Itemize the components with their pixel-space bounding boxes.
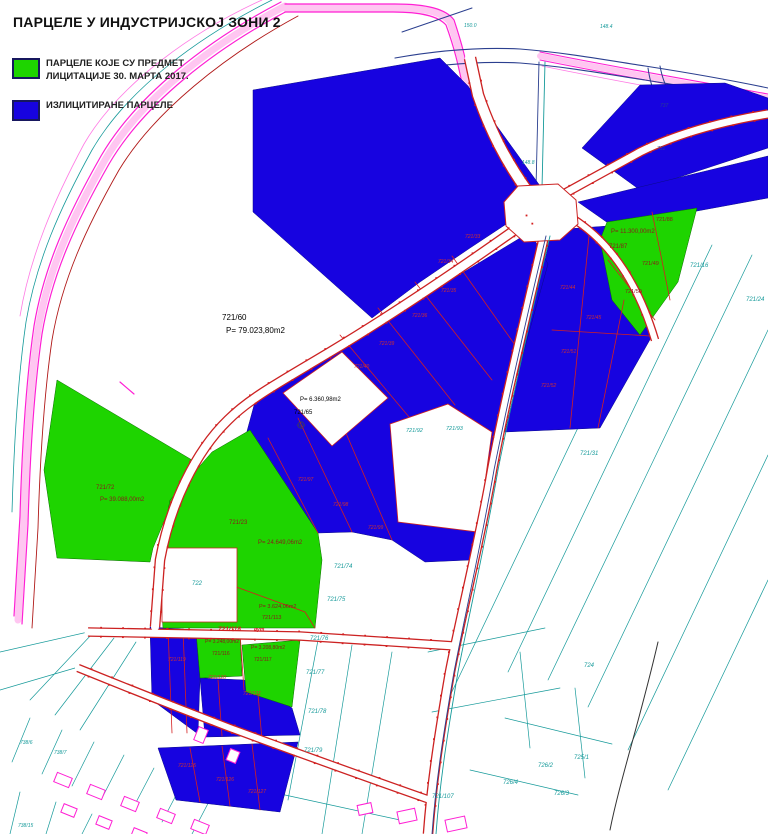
legend-label-auction: ПАРЦЕЛЕ КОЈЕ СУ ПРЕДМЕТ ЛИЦИТАЦИЈЕ 30. М…	[46, 58, 189, 84]
road-tick	[188, 629, 190, 631]
building	[54, 772, 73, 787]
parcel-label: 721/35	[441, 288, 457, 294]
road-tick	[213, 717, 215, 719]
parcel-721-92-93	[390, 404, 492, 532]
road-tick	[541, 266, 543, 268]
road-tick	[364, 644, 366, 646]
parcel-label: 721/77	[306, 670, 325, 676]
utility-line	[536, 62, 539, 188]
parcel-label: P= 79.023,80m2	[226, 326, 285, 335]
parcel-label: 721/50	[625, 289, 642, 295]
road-tick	[292, 379, 294, 381]
parcel-label: 721/24	[746, 297, 765, 303]
parcel-label: 721/39	[379, 341, 395, 347]
road-tick	[450, 696, 452, 698]
road-tick	[163, 522, 165, 524]
road-tick	[157, 544, 159, 546]
road-tick	[210, 724, 212, 726]
parcel-label: 726/2	[538, 763, 554, 769]
field-line	[520, 652, 530, 748]
parcel-label: 725/1	[574, 755, 589, 761]
road-tick	[172, 525, 174, 527]
road-tick	[650, 151, 652, 153]
road-tick	[480, 501, 482, 503]
road-tick	[275, 740, 277, 742]
parcel-label: 721/93	[446, 426, 464, 432]
road-tick	[88, 676, 90, 678]
road-tick	[437, 783, 439, 785]
parcel-label: 721/121	[243, 691, 261, 697]
road-tick	[629, 271, 631, 273]
road-tick	[337, 762, 339, 764]
road-tick	[467, 610, 469, 612]
road-tick	[160, 611, 162, 613]
building	[397, 808, 417, 823]
road-tick	[376, 785, 378, 787]
road-tick	[454, 265, 456, 267]
road-tick	[481, 546, 483, 548]
parcel-label: 721/107	[432, 794, 454, 800]
road-tick	[179, 481, 181, 483]
roundabout	[504, 184, 578, 242]
road-tick	[367, 334, 369, 336]
road-tick	[144, 637, 146, 639]
road-tick	[484, 479, 486, 481]
road-tick	[386, 636, 388, 638]
road-tick	[223, 431, 225, 433]
road-tick	[399, 301, 401, 303]
road-tick	[311, 368, 313, 370]
road-tick	[730, 116, 732, 118]
parcel-label: 721/98	[333, 502, 349, 508]
road-tick	[646, 143, 648, 145]
road-tick	[536, 243, 538, 245]
road-tick	[172, 701, 174, 703]
road-tick	[215, 424, 217, 426]
road-tick	[508, 227, 510, 229]
road-tick	[446, 718, 448, 720]
road-tick	[254, 639, 256, 641]
road-tick	[474, 104, 476, 106]
road-tick	[531, 264, 533, 266]
parcel-label: P= 6.360,98m2	[300, 397, 342, 403]
road-tick	[521, 307, 523, 309]
road-tick	[420, 792, 422, 794]
road-tick	[152, 693, 154, 695]
road-tick	[472, 252, 474, 254]
road-tick	[435, 805, 437, 807]
parcel-label: 724	[584, 663, 595, 669]
road-tick	[293, 755, 295, 757]
parcel-label: 721/34	[438, 259, 454, 265]
road-tick	[494, 481, 496, 483]
road-tick	[588, 174, 590, 176]
road-tick	[507, 371, 509, 373]
road-tick	[404, 310, 406, 312]
road-tick	[497, 414, 499, 416]
parcel-label: 721/49	[642, 261, 659, 267]
legend: ПАРЦЕЛЕ КОЈЕ СУ ПРЕДМЕТ ЛИЦИТАЦИЈЕ 30. М…	[12, 58, 189, 137]
road-tick	[198, 466, 200, 468]
road-tick	[732, 124, 734, 126]
road-tick	[601, 236, 603, 238]
legend-swatch-blue	[12, 100, 40, 121]
parcel-label: 721/97	[298, 477, 314, 483]
road-tick	[296, 747, 298, 749]
road-tick	[408, 638, 410, 640]
building	[131, 828, 147, 834]
parcel-label: P= 3.248,00m2	[205, 639, 239, 645]
road-tick	[193, 709, 195, 711]
road-tick	[709, 121, 711, 123]
road-tick	[417, 289, 419, 291]
road-tick	[355, 777, 357, 779]
road-tick	[458, 653, 460, 655]
road-tick	[584, 221, 586, 223]
road-tick	[430, 648, 432, 650]
road-tick	[111, 676, 113, 678]
building	[61, 804, 77, 818]
road-tick	[622, 275, 624, 277]
road-tick	[607, 164, 609, 166]
road-tick	[711, 129, 713, 131]
road-tick	[397, 792, 399, 794]
road-tick	[579, 228, 581, 230]
road-tick	[531, 223, 533, 225]
parcel-label: 148.8	[522, 160, 535, 166]
road-tick	[209, 448, 211, 450]
parcel-label: 721/44	[560, 285, 576, 291]
road-tick	[435, 277, 437, 279]
building	[121, 796, 140, 811]
building	[96, 816, 112, 830]
road-tick	[444, 673, 446, 675]
parcel-label: P= 39.088,00m2	[100, 497, 145, 503]
road-tick	[480, 80, 482, 82]
road-tick	[490, 240, 492, 242]
road-tick	[752, 111, 754, 113]
road-tick	[511, 350, 513, 352]
road-tick	[468, 82, 470, 84]
field-line	[668, 580, 768, 790]
field-line	[575, 688, 585, 778]
building	[87, 784, 106, 799]
road-tick	[169, 708, 171, 710]
field-line	[0, 668, 75, 690]
road-tick	[144, 628, 146, 630]
road-tick	[526, 286, 528, 288]
road-tick	[493, 436, 495, 438]
parcel-label: 721/126	[216, 777, 234, 783]
road-tick	[100, 627, 102, 629]
parcel-label: 721/127	[248, 789, 266, 795]
road-tick	[494, 120, 496, 122]
parcel-label: 721/92	[406, 428, 423, 434]
road-tick	[573, 193, 575, 195]
road-tick	[502, 393, 504, 395]
road-tick	[324, 348, 326, 350]
parcel-label: 721/45	[586, 315, 602, 321]
road-tick	[536, 288, 538, 290]
road-tick	[417, 799, 419, 801]
parcel-label: 150.0	[464, 23, 477, 29]
road-tick	[472, 589, 474, 591]
road-tick	[492, 145, 494, 147]
road-tick	[320, 632, 322, 634]
road-tick	[443, 740, 445, 742]
road-tick	[453, 630, 455, 632]
road-tick	[273, 391, 275, 393]
road-tick	[231, 732, 233, 734]
municipality-boundary	[610, 642, 658, 830]
road-tick	[238, 416, 240, 418]
road-tick	[516, 373, 518, 375]
road-tick	[531, 309, 533, 311]
road-tick	[483, 125, 485, 127]
building	[445, 816, 467, 832]
road-tick	[630, 161, 632, 163]
road-tick	[272, 747, 274, 749]
road-tick	[610, 258, 612, 260]
road-tick	[364, 635, 366, 637]
road-tick	[690, 136, 692, 138]
road-tick	[252, 740, 254, 742]
road-tick	[513, 235, 515, 237]
road-tick	[100, 636, 102, 638]
parcel-label: 721/117	[254, 657, 272, 663]
road-tick	[201, 442, 203, 444]
road-tick	[254, 732, 256, 734]
road-tick	[268, 382, 270, 384]
road-tick	[150, 610, 152, 612]
road-tick	[476, 567, 478, 569]
road-tick	[316, 755, 318, 757]
road-tick	[386, 645, 388, 647]
road-tick	[334, 770, 336, 772]
parcel-label: 721/113	[262, 615, 281, 621]
road-tick	[249, 394, 251, 396]
road-tick	[342, 642, 344, 644]
parcel-label: 721/16	[690, 263, 709, 269]
parcel-label: пут	[254, 627, 265, 633]
parcel-label: 738/15	[18, 823, 34, 829]
parcel-label: 737	[660, 103, 669, 109]
road-tick	[287, 371, 289, 373]
road-tick	[503, 140, 505, 142]
road-tick	[190, 716, 192, 718]
parcel-label: 721/23	[229, 520, 248, 526]
parcel-label: 721/31	[580, 451, 598, 457]
road-tick	[167, 546, 169, 548]
field-line	[0, 632, 88, 652]
parcel-label: 721/72	[96, 485, 115, 491]
parcel-label: 721/120	[208, 675, 226, 681]
road-tick	[457, 608, 459, 610]
parcel-label: 726/4	[503, 780, 519, 786]
road-tick	[667, 134, 669, 136]
page-title: ПАРЦЕЛЕ У ИНДУСТРИЈСКОЈ ЗОНИ 2	[13, 14, 281, 30]
building	[357, 803, 373, 816]
road-tick	[513, 159, 515, 161]
road-tick	[342, 633, 344, 635]
road-tick	[436, 716, 438, 718]
parcel-label: 721/52	[541, 383, 557, 389]
road-tick	[526, 215, 528, 217]
road-tick	[448, 651, 450, 653]
legend-swatch-green	[12, 58, 40, 79]
road-tick	[486, 100, 488, 102]
parcel-label: 731	[657, 146, 666, 152]
road-tick	[408, 647, 410, 649]
road-tick	[427, 782, 429, 784]
road-tick	[166, 637, 168, 639]
parcel-label: 722	[192, 581, 203, 587]
parcel-label: 148.4	[600, 24, 613, 30]
road-tick	[386, 322, 388, 324]
road-tick	[255, 403, 257, 405]
road-tick	[440, 695, 442, 697]
parcel-label: 721/76	[310, 636, 329, 642]
road-tick	[441, 285, 443, 287]
road-tick	[179, 505, 181, 507]
parcel-label: P= 24.649,06m2	[258, 540, 303, 546]
parcel-label: 721/33	[465, 234, 481, 240]
parcel-label: 721/36	[412, 313, 428, 319]
road-tick	[611, 172, 613, 174]
road-tick	[462, 632, 464, 634]
road-tick	[471, 544, 473, 546]
road-tick	[166, 628, 168, 630]
building	[157, 808, 176, 823]
road-tick	[592, 182, 594, 184]
road-tick	[641, 314, 643, 316]
corridor-stub	[120, 382, 134, 394]
parcel-label: 726/3	[554, 791, 570, 797]
road-tick	[188, 638, 190, 640]
field-line	[505, 718, 612, 744]
road-tick	[170, 501, 172, 503]
road-tick	[516, 328, 518, 330]
road-tick	[91, 668, 93, 670]
road-tick	[454, 675, 456, 677]
parcel-label: 721/99	[368, 525, 384, 531]
parcel-label: 721/40	[354, 364, 370, 370]
road-tick	[164, 567, 166, 569]
road-tick	[568, 185, 570, 187]
parcel-label: 721/79	[304, 748, 323, 754]
road-tick	[525, 177, 527, 179]
parcel-label: 721/125	[178, 763, 196, 769]
road-tick	[362, 325, 364, 327]
parcel-label: 721/78	[308, 709, 327, 715]
road-tick	[503, 165, 505, 167]
utility-line	[542, 62, 545, 188]
parcel-label: 721/51	[561, 349, 577, 355]
road-tick	[358, 770, 360, 772]
parcel-label: 721/75	[327, 597, 346, 603]
road-tick	[467, 565, 469, 567]
road-tick	[526, 331, 528, 333]
field-line	[82, 814, 92, 834]
road-tick	[430, 760, 432, 762]
legend-label-sold: ИЗЛИЦИТИРАНЕ ПАРЦЕЛЕ	[46, 100, 173, 113]
road-tick	[433, 738, 435, 740]
parcel-label: 738/7	[54, 750, 67, 756]
road-tick	[626, 153, 628, 155]
road-tick	[477, 261, 479, 263]
parcel-label: 721/87	[609, 244, 628, 250]
parcel-label: 721/74	[334, 564, 353, 570]
road-tick	[234, 725, 236, 727]
road-tick	[131, 685, 133, 687]
parcel-label: P= 11.300,00m2	[611, 229, 655, 235]
road-tick	[488, 457, 490, 459]
field-line	[322, 645, 352, 834]
road-tick	[490, 503, 492, 505]
road-tick	[210, 629, 212, 631]
road-tick	[231, 408, 233, 410]
parcel-label: 721/88	[656, 217, 673, 223]
road-tick	[462, 587, 464, 589]
road-tick	[189, 461, 191, 463]
road-tick	[495, 248, 497, 250]
road-tick	[507, 416, 509, 418]
road-tick	[459, 273, 461, 275]
road-tick	[298, 640, 300, 642]
road-tick	[512, 395, 514, 397]
road-tick	[343, 337, 345, 339]
legend-item-auction: ПАРЦЕЛЕ КОЈЕ СУ ПРЕДМЕТ ЛИЦИТАЦИЈЕ 30. М…	[12, 58, 189, 84]
road-tick	[616, 253, 618, 255]
road-tick	[670, 143, 672, 145]
road-tick	[348, 345, 350, 347]
road-tick	[122, 627, 124, 629]
road-tick	[502, 438, 504, 440]
parcel-label: 721/116	[212, 651, 230, 657]
road-tick	[440, 761, 442, 763]
road-tick	[515, 184, 517, 186]
road-tick	[152, 588, 154, 590]
road-tick	[122, 636, 124, 638]
road-tick	[754, 120, 756, 122]
field-line	[628, 455, 768, 750]
road-tick	[305, 359, 307, 361]
parcel-label: 721/65	[294, 410, 313, 416]
road-tick	[298, 631, 300, 633]
road-tick	[380, 313, 382, 315]
map-page: 721/60P= 79.023,80m2P= 6.360,98m2721/657…	[0, 0, 768, 834]
road-tick	[162, 589, 164, 591]
parcel-label: 721/119	[168, 657, 186, 663]
road-tick	[108, 684, 110, 686]
road-tick	[649, 311, 651, 313]
parcel-label: 738/6	[20, 740, 33, 746]
road-tick	[399, 784, 401, 786]
road-tick	[149, 700, 151, 702]
road-tick	[154, 566, 156, 568]
road-tick	[596, 242, 598, 244]
parcel-label: 721/118	[218, 626, 241, 633]
road-tick	[688, 127, 690, 129]
parcel-label: P= 3.624,06m2	[259, 604, 296, 610]
road-tick	[329, 357, 331, 359]
road-tick	[379, 777, 381, 779]
road-tick	[129, 692, 131, 694]
road-tick	[314, 762, 316, 764]
road-tick	[498, 459, 500, 461]
road-tick	[521, 352, 523, 354]
parcel-label: 721/60	[222, 313, 247, 322]
